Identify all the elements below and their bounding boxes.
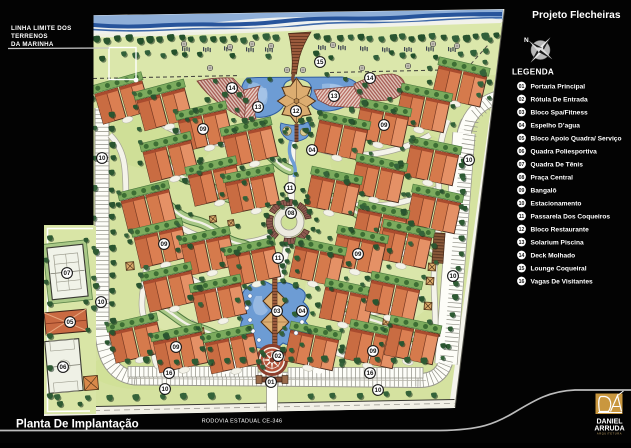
svg-text:TERRENOS: TERRENOS (11, 33, 48, 40)
svg-text:03: 03 (274, 308, 281, 315)
svg-text:DA MARINHA: DA MARINHA (11, 41, 54, 48)
svg-text:Bloco Restaurante: Bloco Restaurante (531, 226, 590, 233)
svg-text:08: 08 (288, 210, 295, 217)
svg-text:14: 14 (367, 75, 374, 82)
svg-text:09: 09 (173, 344, 180, 351)
svg-text:10: 10 (99, 155, 106, 162)
svg-text:14: 14 (519, 253, 525, 259)
svg-text:01: 01 (519, 84, 525, 90)
svg-text:Bloco Apoio Quadra/ Serviço: Bloco Apoio Quadra/ Serviço (531, 135, 622, 142)
svg-text:10: 10 (466, 157, 473, 164)
svg-text:ARQUITETURA: ARQUITETURA (597, 432, 622, 436)
svg-text:Quadra De Tênis: Quadra De Tênis (531, 161, 584, 168)
svg-text:09: 09 (381, 122, 388, 129)
svg-text:08: 08 (519, 175, 525, 181)
svg-text:Praça Central: Praça Central (531, 174, 574, 181)
svg-text:13: 13 (331, 93, 338, 100)
svg-text:16: 16 (367, 370, 374, 377)
svg-text:09: 09 (519, 188, 525, 194)
svg-text:15: 15 (519, 266, 525, 272)
svg-text:Deck Molhado: Deck Molhado (531, 252, 576, 259)
svg-text:13: 13 (519, 240, 525, 246)
svg-text:Quadra Poliesportiva: Quadra Poliesportiva (531, 148, 598, 155)
svg-text:15: 15 (317, 59, 324, 66)
svg-text:16: 16 (519, 279, 525, 285)
svg-text:11: 11 (519, 214, 525, 220)
svg-text:Passarela Dos Coqueiros: Passarela Dos Coqueiros (531, 213, 611, 220)
svg-text:Vagas De Visitantes: Vagas De Visitantes (531, 278, 594, 285)
svg-text:10: 10 (375, 387, 382, 394)
svg-text:04: 04 (519, 123, 525, 129)
svg-text:10: 10 (162, 386, 169, 393)
svg-text:Espelho D’agua: Espelho D’agua (531, 122, 581, 129)
svg-text:01: 01 (268, 379, 275, 386)
svg-text:Lounge Coqueiral: Lounge Coqueiral (531, 265, 587, 272)
svg-text:Projeto Flecheiras: Projeto Flecheiras (532, 10, 621, 21)
svg-text:02: 02 (275, 353, 282, 360)
svg-text:09: 09 (370, 348, 377, 355)
svg-text:12: 12 (519, 227, 525, 233)
svg-text:07: 07 (64, 270, 71, 277)
svg-text:DANIEL: DANIEL (596, 419, 623, 426)
svg-text:12: 12 (293, 108, 300, 115)
svg-text:ARRUDA: ARRUDA (594, 426, 624, 433)
svg-text:14: 14 (229, 85, 236, 92)
svg-text:LINHA LIMITE DOS: LINHA LIMITE DOS (11, 25, 72, 32)
svg-text:06: 06 (519, 149, 525, 155)
svg-text:09: 09 (161, 241, 168, 248)
svg-text:RODOVIA ESTADUAL CE-346: RODOVIA ESTADUAL CE-346 (202, 419, 283, 425)
svg-text:N: N (524, 37, 529, 44)
svg-text:10: 10 (98, 299, 105, 306)
svg-text:05: 05 (67, 319, 74, 326)
svg-text:07: 07 (519, 162, 525, 168)
svg-text:16: 16 (166, 370, 173, 377)
svg-text:03: 03 (519, 110, 525, 116)
svg-text:10: 10 (519, 201, 525, 207)
svg-text:LEGENDA: LEGENDA (512, 68, 554, 77)
svg-text:10: 10 (450, 273, 457, 280)
svg-text:09: 09 (200, 126, 207, 133)
svg-text:04: 04 (309, 147, 316, 154)
svg-text:05: 05 (519, 136, 525, 142)
svg-text:11: 11 (287, 185, 294, 192)
svg-text:Portaria Principal: Portaria Principal (531, 83, 586, 90)
svg-text:04: 04 (299, 308, 306, 315)
svg-text:11: 11 (275, 255, 282, 262)
svg-text:Estacionamento: Estacionamento (531, 200, 582, 207)
svg-text:06: 06 (60, 364, 67, 371)
svg-text:Bloco Spa/Fitness: Bloco Spa/Fitness (531, 109, 588, 116)
svg-text:Bangalô: Bangalô (531, 187, 557, 194)
svg-text:Rótula De Entrada: Rótula De Entrada (531, 96, 588, 103)
svg-text:Solarium Piscina: Solarium Piscina (531, 239, 584, 246)
svg-text:09: 09 (355, 251, 362, 258)
svg-text:13: 13 (255, 104, 262, 111)
svg-text:02: 02 (519, 97, 525, 103)
svg-text:Planta De Implantação: Planta De Implantação (16, 419, 139, 431)
